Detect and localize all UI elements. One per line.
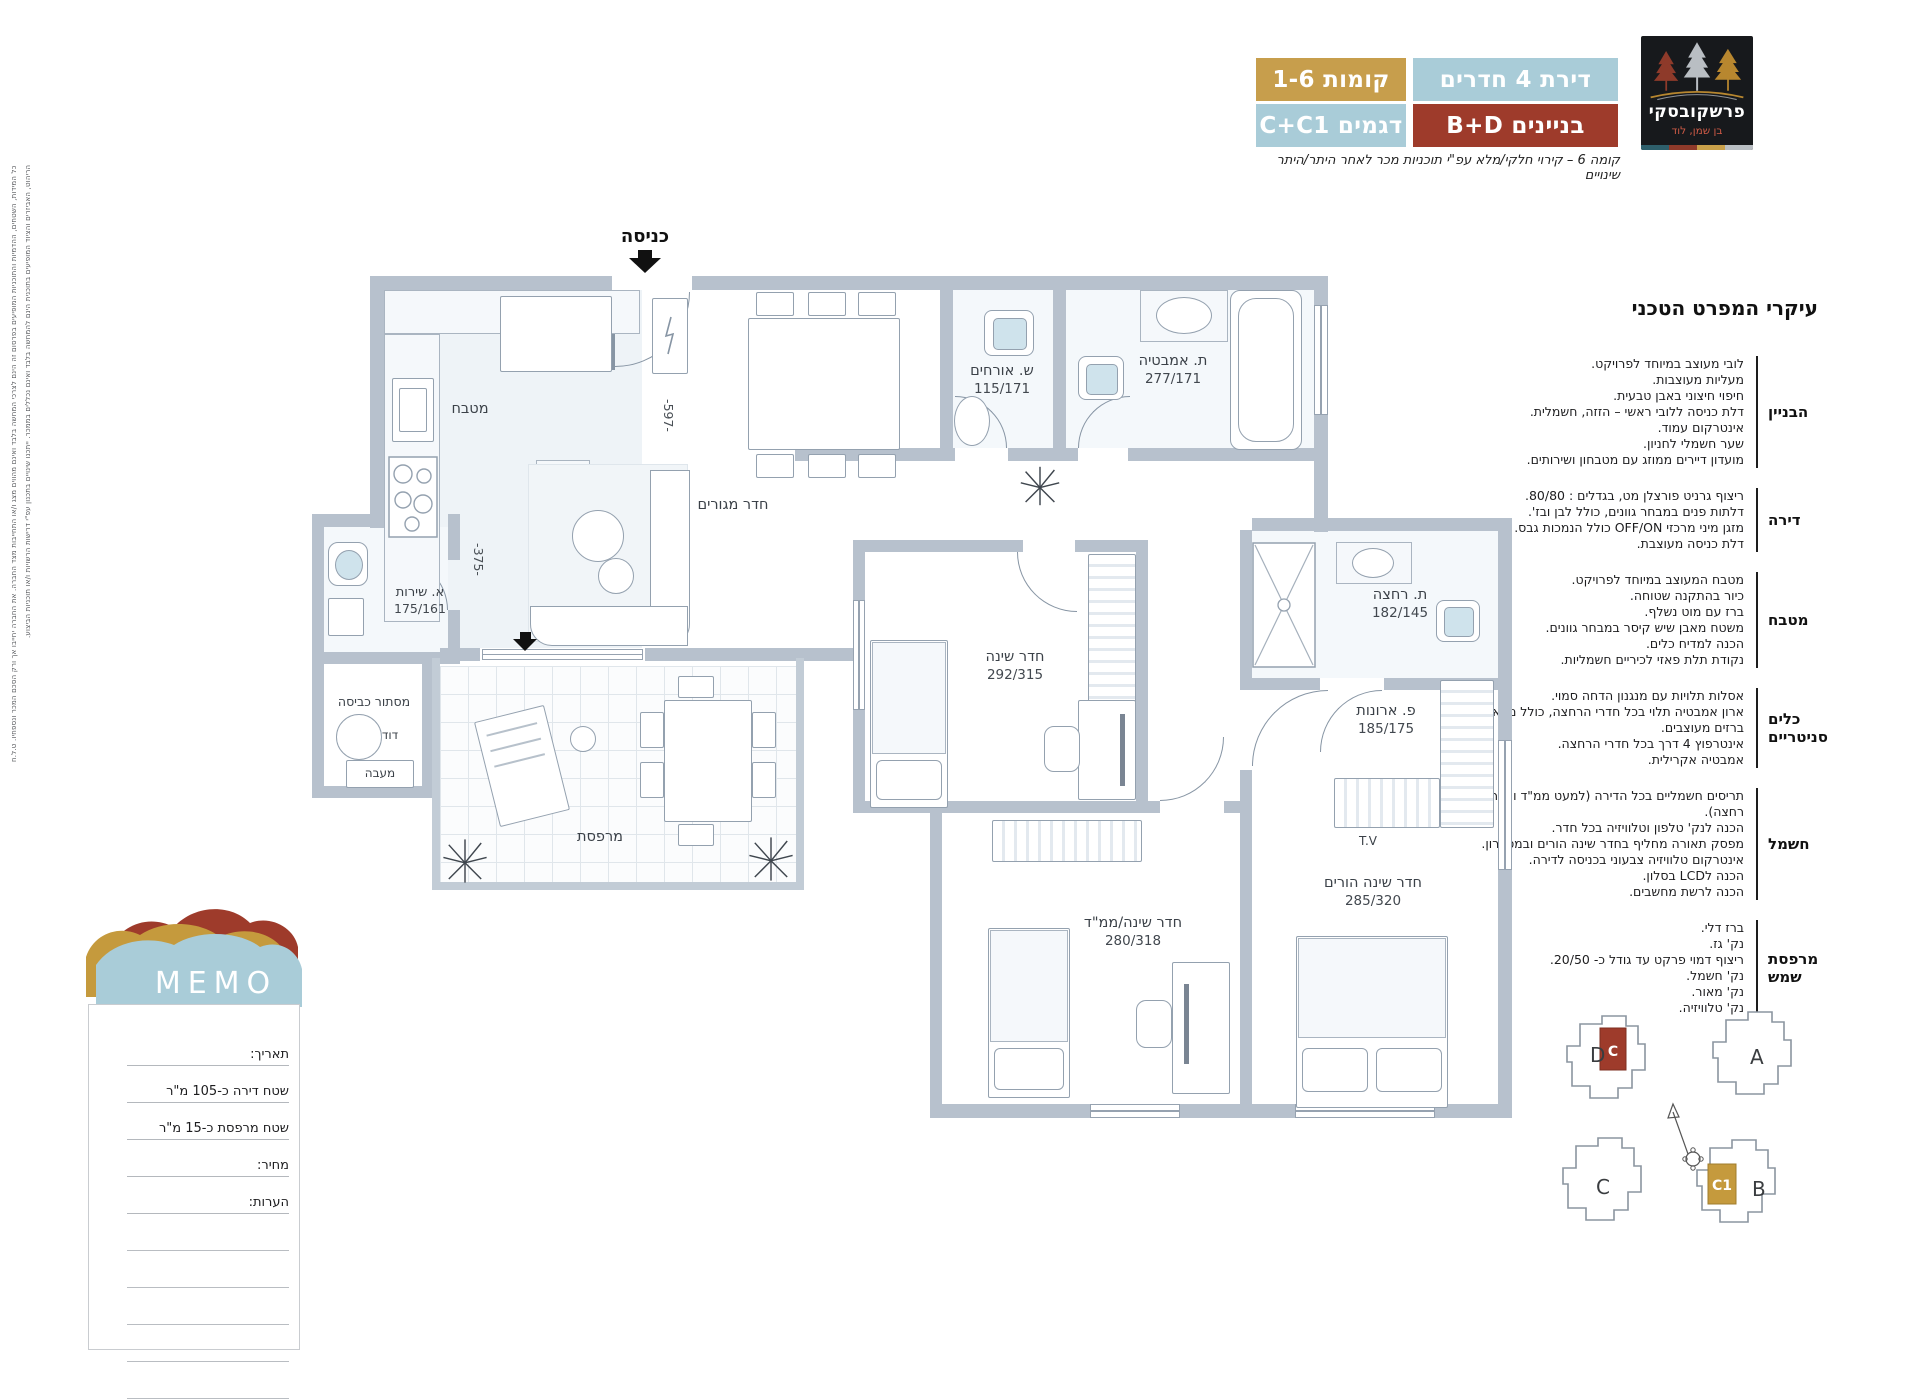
desk	[1078, 700, 1136, 800]
room-label-parents: חדר שינה הורים 285/320	[1298, 874, 1448, 911]
bath-basin	[1156, 297, 1212, 334]
room-name: ת. אמבטיה	[1118, 352, 1228, 371]
bathtub-inner	[1238, 298, 1294, 442]
wall	[370, 276, 612, 290]
plant-icon	[436, 834, 494, 888]
room-dimensions: 185/175	[1336, 721, 1436, 739]
wall	[1252, 518, 1512, 531]
room-label-closets: פ. ארונות 185/175	[1336, 702, 1436, 739]
wall	[692, 276, 1328, 290]
dimension-hall: -375-	[471, 543, 486, 576]
room-dimensions: 182/145	[1350, 605, 1450, 623]
balcony-sliding-window	[482, 649, 643, 660]
electric-bolt-icon	[653, 299, 686, 372]
wall	[1240, 678, 1320, 690]
kitchen-sink-basin	[399, 388, 427, 432]
stove-icon	[388, 456, 438, 538]
room-dimensions: 115/171	[950, 381, 1054, 399]
memo-title: MEMO	[155, 966, 277, 1001]
building-b-label: B	[1752, 1177, 1766, 1201]
pillow	[876, 760, 942, 800]
balcony-chair	[752, 762, 776, 798]
memo-row-blank	[127, 1288, 289, 1325]
monitor	[1120, 714, 1125, 786]
memo-header: MEMO	[78, 885, 304, 1011]
mamad-window	[1090, 1104, 1180, 1118]
pillow	[1376, 1048, 1442, 1092]
room-name: חדר שינה/ממ"ד	[1053, 914, 1213, 933]
room-label-laundry: מסתור כביסה	[322, 694, 426, 709]
dining-chair	[756, 292, 794, 316]
dining-chair	[808, 454, 846, 478]
room-label-guest-wc: ש. אורחים 115/171	[950, 362, 1054, 399]
memo-label: שטח מרפסת כ-15 מ"ר	[159, 1121, 289, 1136]
desk-chair	[1044, 726, 1080, 772]
wall	[1240, 530, 1252, 690]
bedroom-window	[853, 600, 865, 710]
wall	[1008, 448, 1078, 461]
memo-row-notes: הערות:	[127, 1177, 289, 1214]
memo-row-balcony-area: שטח מרפסת כ-15 מ"ר	[127, 1103, 289, 1140]
building-d-label: D	[1590, 1043, 1605, 1067]
hall-arrow-icon	[520, 632, 531, 639]
wall	[645, 648, 865, 661]
room-label-bedroom: חדר שינה 292/315	[965, 648, 1065, 685]
room-dimensions: 175/161	[379, 601, 461, 618]
building-a-label: A	[1750, 1045, 1764, 1069]
site-key-plan: D A C B C C1	[1560, 1006, 1810, 1261]
room-dimensions: 277/171	[1118, 371, 1228, 389]
bed-blanket	[872, 642, 946, 754]
service-sink	[328, 598, 364, 636]
condenser-label: מעבה	[350, 766, 410, 780]
kitchen-cabinet	[500, 296, 612, 372]
sofa-section	[530, 606, 688, 646]
boiler-label: דוד	[372, 728, 408, 742]
wardrobe	[992, 820, 1142, 862]
mamad-door	[1160, 737, 1224, 801]
wall	[930, 813, 942, 1118]
wall	[1224, 801, 1240, 813]
entrance-label: כניסה	[600, 226, 690, 247]
shower-basin	[1352, 548, 1394, 578]
dining-chair	[858, 454, 896, 478]
plant-icon	[1016, 462, 1064, 510]
wall	[1053, 289, 1066, 449]
entrance-arrow-icon	[629, 258, 661, 273]
memo-pad: תאריך: שטח דירה כ-105 מ"ר שטח מרפסת כ-15…	[88, 1004, 300, 1350]
wall	[370, 276, 384, 528]
dining-chair	[808, 292, 846, 316]
pillow	[994, 1048, 1064, 1090]
wall	[1240, 770, 1252, 1118]
pillow	[1302, 1048, 1368, 1092]
room-label-balcony: מרפסת	[560, 828, 640, 847]
balcony-stool	[570, 726, 596, 752]
room-name: א. שירות	[379, 584, 461, 601]
memo-row-blank	[127, 1362, 289, 1399]
room-label-living: חדר מגורים	[678, 496, 788, 515]
tv-label: T.V	[1348, 834, 1388, 848]
guest-toilet-seat	[993, 318, 1027, 350]
balcony-table	[664, 700, 752, 822]
memo-row-price: מחיר:	[127, 1140, 289, 1177]
room-name: פ. ארונות	[1336, 702, 1436, 721]
room-label-bath: ת. אמבטיה 277/171	[1118, 352, 1228, 389]
memo-row-blank	[127, 1251, 289, 1288]
desk	[1172, 962, 1230, 1094]
building-c-label: C	[1596, 1175, 1610, 1199]
electric-cabinet	[652, 298, 688, 374]
north-arrow-icon	[1668, 1104, 1703, 1170]
wall	[853, 540, 1023, 552]
double-bed-blanket	[1298, 938, 1446, 1038]
wall	[440, 648, 480, 661]
side-table	[598, 558, 634, 594]
balcony-chair	[640, 762, 664, 798]
room-name: ת. רחצה	[1350, 586, 1450, 605]
memo-label: תאריך:	[250, 1047, 289, 1062]
dining-table	[748, 318, 900, 450]
coffee-table	[572, 510, 624, 562]
room-label-kitchen: מטבח	[430, 400, 510, 419]
bath-window	[1314, 305, 1328, 415]
memo-row-date: תאריך:	[127, 1029, 289, 1066]
guest-sink	[954, 396, 990, 446]
balcony-chair	[678, 824, 714, 846]
memo-row-blank	[127, 1325, 289, 1362]
room-name: חדר שינה הורים	[1298, 874, 1448, 893]
monitor	[1184, 984, 1189, 1064]
dining-chair	[756, 454, 794, 478]
bath-toilet-seat	[1086, 364, 1118, 395]
wall	[448, 514, 460, 560]
tv-cabinet	[1334, 778, 1440, 828]
parents-window	[1498, 740, 1512, 870]
room-dimensions: 280/318	[1053, 933, 1213, 951]
plant-icon	[742, 832, 800, 886]
hall-arrow-icon	[513, 639, 537, 651]
unit-c1-label: C1	[1712, 1178, 1732, 1194]
dressing-door	[1252, 690, 1328, 766]
service-toilet-seat	[335, 550, 363, 580]
desk-chair	[1136, 1000, 1172, 1048]
wardrobe	[1440, 680, 1494, 828]
entrance-arrow-icon	[638, 250, 652, 258]
wall	[1136, 540, 1148, 813]
balcony-chair	[752, 712, 776, 748]
room-name: חדר שינה	[965, 648, 1065, 667]
room-name: ש. אורחים	[950, 362, 1054, 381]
memo-row-apartment-area: שטח דירה כ-105 מ"ר	[127, 1066, 289, 1103]
shower-stall-icon	[1252, 542, 1316, 668]
unit-c-label: C	[1608, 1044, 1618, 1060]
dining-chair	[858, 292, 896, 316]
room-dimensions: 285/320	[1298, 893, 1448, 911]
memo-row-blank	[127, 1214, 289, 1251]
room-dimensions: 292/315	[965, 667, 1065, 685]
room-label-service-wc: א. שירות 175/161	[379, 584, 461, 618]
wall	[1148, 801, 1160, 813]
room-label-shower: ת. רחצה 182/145	[1350, 586, 1450, 623]
dimension-living: -597-	[661, 399, 676, 432]
bedroom-door	[1017, 552, 1077, 612]
balcony-chair	[640, 712, 664, 748]
memo-label: הערות:	[249, 1195, 289, 1210]
memo-label: מחיר:	[257, 1158, 289, 1173]
balcony-chair	[678, 676, 714, 698]
memo-label: שטח דירה כ-105 מ"ר	[166, 1084, 289, 1099]
wardrobe	[1088, 554, 1136, 704]
room-label-mamad: חדר שינה/ממ"ד 280/318	[1053, 914, 1213, 951]
